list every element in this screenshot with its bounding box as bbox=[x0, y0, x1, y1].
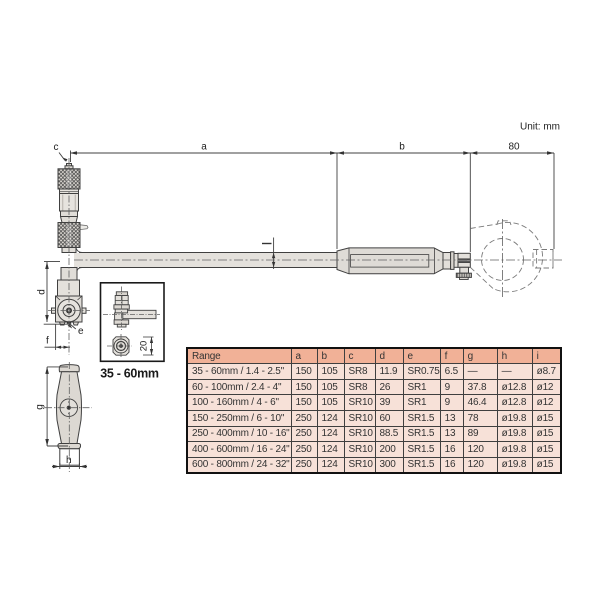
svg-text:b: b bbox=[399, 142, 405, 153]
svg-text:h: h bbox=[66, 455, 72, 466]
svg-text:20: 20 bbox=[139, 341, 150, 352]
svg-text:80: 80 bbox=[508, 142, 520, 153]
svg-text:f: f bbox=[46, 336, 49, 347]
svg-text:Unit: mm: Unit: mm bbox=[520, 122, 560, 133]
svg-text:g: g bbox=[35, 404, 46, 410]
svg-text:d: d bbox=[37, 289, 48, 295]
svg-text:35 - 60mm: 35 - 60mm bbox=[100, 367, 159, 381]
svg-text:c: c bbox=[54, 142, 59, 153]
svg-text:e: e bbox=[78, 326, 84, 337]
svg-text:a: a bbox=[201, 142, 207, 153]
